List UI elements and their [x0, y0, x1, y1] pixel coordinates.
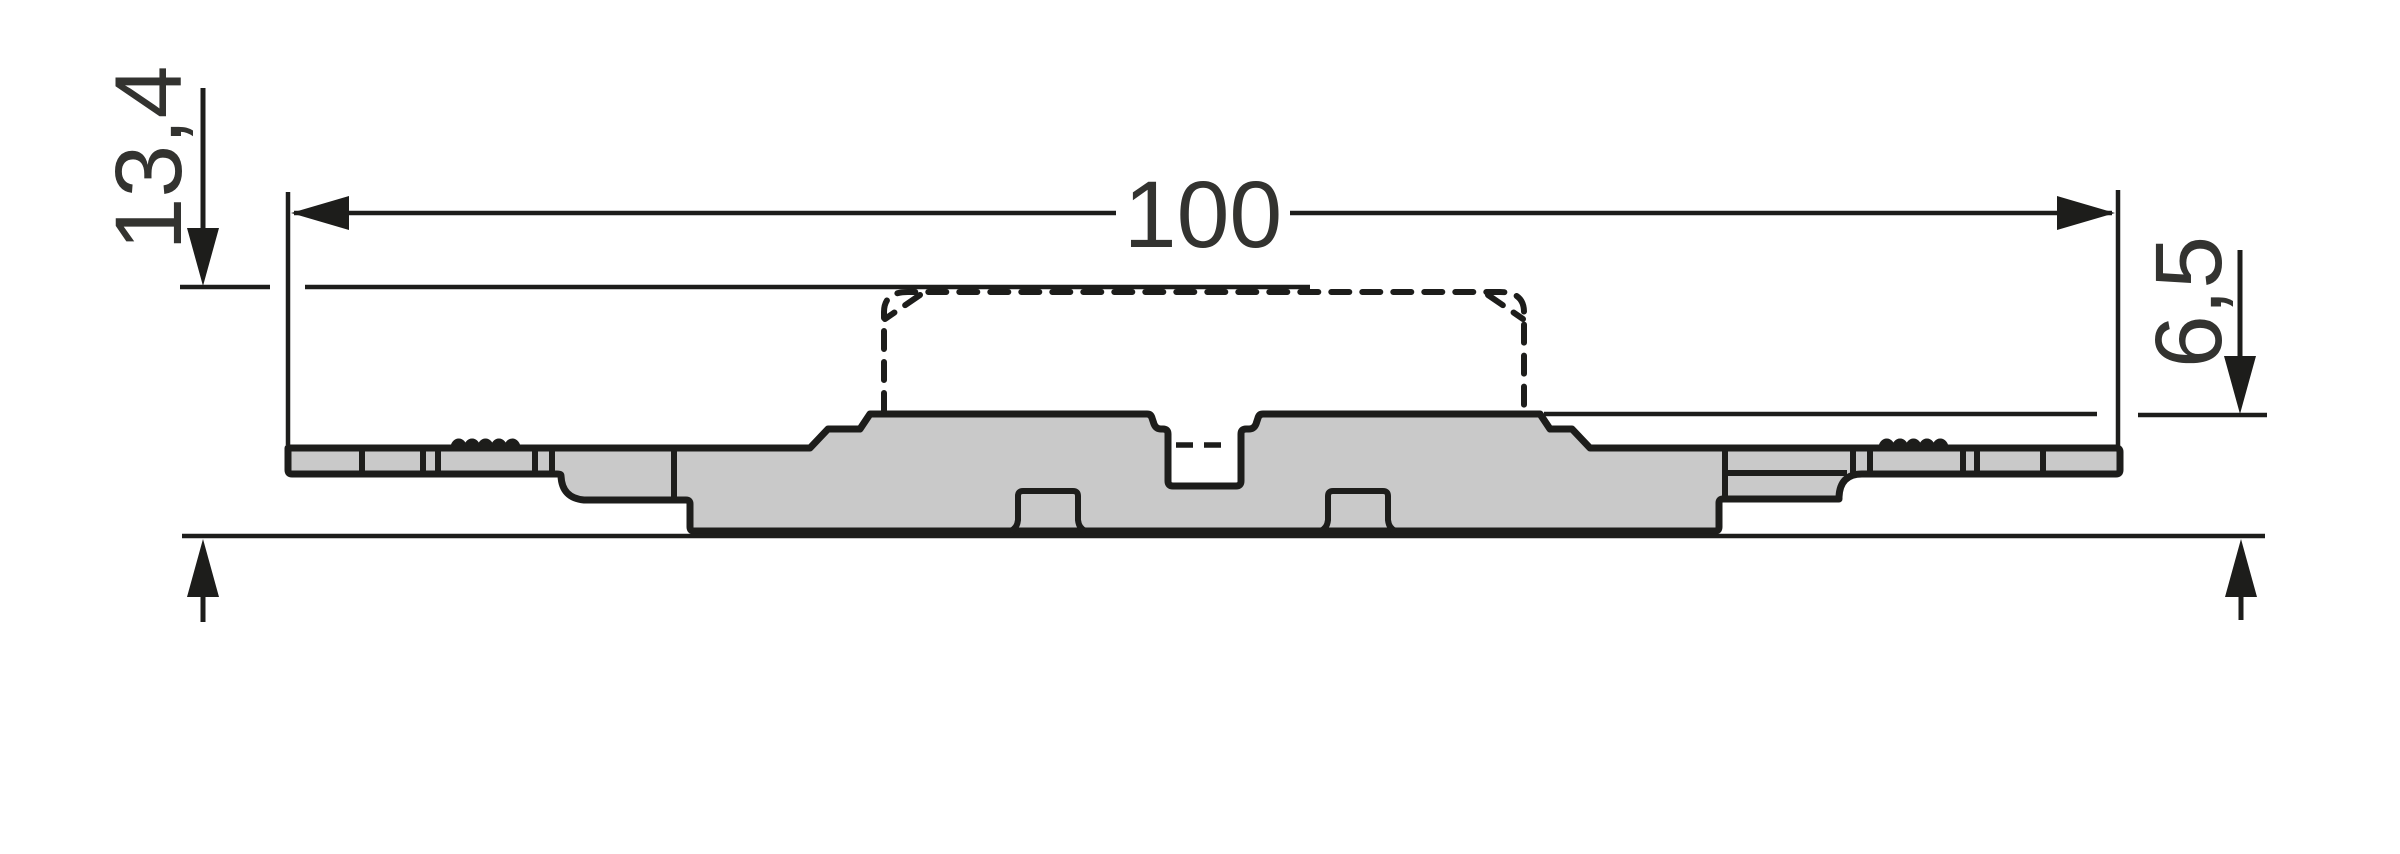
dimension-upper-height: 6,5 — [2136, 236, 2257, 620]
dimension-total-height: 13,4 — [96, 66, 219, 622]
dimension-label-width: 100 — [1124, 162, 1283, 268]
phantom-corner-left — [885, 295, 920, 319]
arrowhead-right-icon — [2057, 196, 2115, 230]
serration-right — [1880, 440, 1947, 450]
dimension-overall-width: 100 — [291, 162, 2115, 268]
arrowhead-up-icon — [2225, 539, 2257, 597]
serration-left — [452, 440, 519, 450]
phantom-body — [884, 292, 1524, 411]
phantom-accessory-outline — [884, 292, 1524, 411]
dimension-label-total-height: 13,4 — [96, 66, 202, 251]
dimension-label-upper-height: 6,5 — [2136, 236, 2242, 368]
dimension-drawing-svg: 100 13,4 6,5 — [0, 0, 2400, 854]
arrowhead-up-icon — [187, 539, 219, 597]
arrowhead-left-icon — [291, 196, 349, 230]
part-cross-section — [288, 414, 2120, 531]
technical-drawing-page: 100 13,4 6,5 — [0, 0, 2400, 854]
